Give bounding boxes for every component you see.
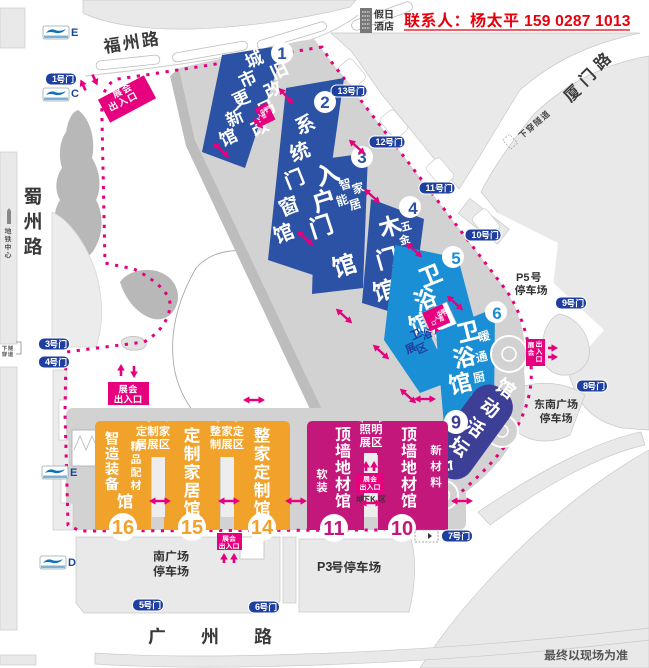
svg-text:13: 13 [338, 86, 348, 96]
svg-text:4: 4 [408, 199, 418, 218]
svg-text:D: D [68, 557, 76, 569]
svg-text:14: 14 [251, 517, 274, 539]
svg-text:10: 10 [391, 518, 413, 540]
svg-text:16: 16 [112, 517, 134, 539]
svg-text:9: 9 [562, 298, 567, 308]
svg-text:2: 2 [320, 93, 329, 112]
svg-text:6: 6 [492, 304, 501, 323]
svg-text:12: 12 [376, 137, 386, 147]
svg-text:P3: P3 [317, 560, 332, 574]
svg-text:E: E [71, 27, 78, 39]
svg-text:11: 11 [426, 183, 436, 193]
svg-text:3: 3 [45, 339, 50, 349]
svg-text:4: 4 [45, 357, 50, 367]
svg-text:8: 8 [583, 381, 588, 391]
svg-text:159 0287 1013: 159 0287 1013 [524, 13, 631, 30]
svg-text:P5: P5 [516, 272, 529, 284]
svg-text:15: 15 [181, 517, 203, 539]
svg-text:9: 9 [451, 413, 461, 433]
svg-text:E: E [70, 467, 77, 479]
svg-text:5: 5 [139, 600, 144, 610]
svg-text:C: C [71, 88, 79, 100]
svg-text:5: 5 [451, 249, 460, 268]
svg-text:1: 1 [52, 74, 57, 84]
svg-text:10: 10 [472, 230, 482, 240]
svg-text:7: 7 [448, 531, 453, 541]
svg-text:6: 6 [255, 602, 260, 612]
svg-text:11: 11 [323, 518, 344, 540]
svg-text:1: 1 [277, 44, 286, 63]
